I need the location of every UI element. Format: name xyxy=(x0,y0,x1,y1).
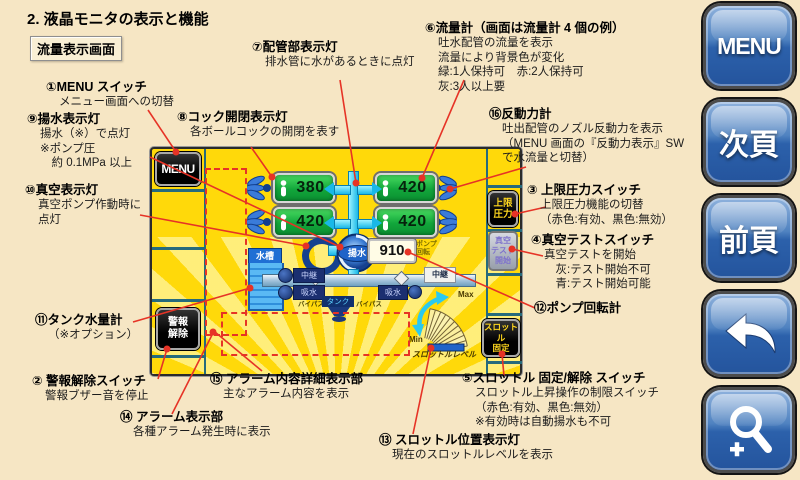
annotation-line: 主なアラーム内容を表示 xyxy=(223,387,363,402)
bypass-right-label: バイパス xyxy=(356,298,382,308)
annotation-line: スロットル上昇操作の制限スイッチ xyxy=(475,386,659,401)
annotation-vacuum-test: ④真空テストスイッチ 真空テストを開始 灰:テスト開始不可 青:テスト開始可能 xyxy=(531,233,654,292)
back-icon xyxy=(718,306,780,362)
annotation-line: （赤色:有効、黒色:無効） xyxy=(475,401,659,416)
annotation-title: ⑪タンク水量計 xyxy=(35,313,138,328)
help-page: 2. 液晶モニタの表示と機能 流量表示画面 MENU 警報 解除 上限 圧力 真… xyxy=(0,0,800,480)
annotation-title: ①MENU スイッチ xyxy=(46,80,174,95)
annotation-upper-limit: ③ 上限圧力スイッチ 上限圧力機能の切替 （赤色:有効、黒色:無効） xyxy=(527,183,673,227)
pipe-arm xyxy=(334,219,351,229)
annotation-line: （赤色:有効、黒色:無効） xyxy=(540,213,673,228)
coupling-icon xyxy=(278,285,293,300)
annotation-title: ⑩真空表示灯 xyxy=(25,183,141,198)
annotation-title: ⑨揚水表示灯 xyxy=(27,112,132,127)
arrow-left xyxy=(324,182,334,196)
annotation-line: 流量により背景色が変化 xyxy=(438,51,624,66)
sidebar-back-button[interactable] xyxy=(703,291,795,377)
arrow-left xyxy=(324,216,334,230)
annotation-line: 吐出配管のノズル反動力を表示 xyxy=(502,122,684,137)
annotation-line: 吐水配管の流量を表示 xyxy=(438,36,624,51)
annotation-title: ⑭ アラーム表示部 xyxy=(120,410,271,425)
sidebar-menu-label: MENU xyxy=(717,33,781,60)
throttle-min-label: Min xyxy=(409,335,423,344)
annotation-title: ⑦配管部表示灯 xyxy=(252,40,415,55)
arrow-right xyxy=(372,182,382,196)
annotation-title: ⑥流量計（画面は流量計 4 個の例） xyxy=(425,21,624,36)
annotation-throttle-lock: ⑤スロットル 固定/解除 スイッチ スロットル上昇操作の制限スイッチ （赤色:有… xyxy=(462,371,659,430)
annotation-title: ④真空テストスイッチ xyxy=(531,233,654,248)
person-icon xyxy=(279,180,288,197)
annotation-title: ③ 上限圧力スイッチ xyxy=(527,183,673,198)
annotation-line: で水流量と切替） xyxy=(502,151,684,166)
annotation-title: ② 警報解除スイッチ xyxy=(32,374,149,389)
annotation-line: 灰:3人以上要 xyxy=(438,80,624,95)
annotation-alarm-release: ② 警報解除スイッチ 警報ブザー音を停止 xyxy=(32,374,149,404)
arrow-right xyxy=(372,216,382,230)
sidebar-zoom-in-button[interactable] xyxy=(703,387,795,473)
pump-rpm-display: 910 xyxy=(368,239,416,263)
vacuum-test-switch[interactable]: 真空 テスト 開始 xyxy=(488,231,518,271)
panel-menu-button[interactable]: MENU xyxy=(155,152,201,186)
annotation-vacuum-lamp: ⑩真空表示灯 真空ポンプ作動時に 点灯 xyxy=(25,183,141,227)
annotation-line: 上限圧力機能の切替 xyxy=(540,198,673,213)
alarm-release-switch[interactable]: 警報 解除 xyxy=(156,308,200,350)
sidebar-next-page-button[interactable]: 次頁 xyxy=(703,99,795,185)
annotation-line: 警報ブザー音を停止 xyxy=(45,389,149,404)
coupling-icon xyxy=(278,268,293,283)
throttle-max-label: Max xyxy=(458,290,474,299)
zoom-in-icon xyxy=(720,401,778,459)
relay-right-label: 中継 xyxy=(424,267,456,283)
annotation-line: 現在のスロットルレベルを表示 xyxy=(392,448,553,463)
annotation-piping-lamp: ⑦配管部表示灯 排水管に水があるときに点灯 xyxy=(252,40,415,70)
annotation-title: ⑤スロットル 固定/解除 スイッチ xyxy=(462,371,659,386)
flow-value: 420 xyxy=(390,213,435,231)
annotation-line: 排水管に水があるときに点灯 xyxy=(265,55,415,70)
annotation-line: ※ポンプ圧 xyxy=(40,142,132,157)
annotation-title: ⑧コック開閉表示灯 xyxy=(177,110,339,125)
tank-connector-label: タンク xyxy=(322,296,354,307)
relay-left-label: 中継 xyxy=(293,268,325,283)
annotation-line: 緑:1人保持可 赤:2人保持可 xyxy=(438,65,624,80)
sidebar-next-label: 次頁 xyxy=(719,120,779,164)
annotation-line: 点灯 xyxy=(38,213,141,228)
annotation-title: ⑮ アラーム内容詳細表示部 xyxy=(210,372,363,387)
annotation-title: ⑯反動力計 xyxy=(489,107,684,122)
annotation-alarm-detail: ⑮ アラーム内容詳細表示部 主なアラーム内容を表示 xyxy=(210,372,363,402)
water-tank-label: 水槽 xyxy=(248,248,282,264)
annotation-flow-meter: ⑥流量計（画面は流量計 4 個の例） 吐水配管の流量を表示 流量により背景色が変… xyxy=(425,21,624,94)
sidebar-prev-page-button[interactable]: 前頁 xyxy=(703,195,795,281)
page-title: 2. 液晶モニタの表示と機能 xyxy=(27,8,209,29)
annotation-throttle-position: ⑬ スロットル位置表示灯 現在のスロットルレベルを表示 xyxy=(379,433,553,463)
screen-name-label: 流量表示画面 xyxy=(30,36,122,61)
annotation-menu-switch: ①MENU スイッチ メニュー画面への切替 xyxy=(46,80,174,110)
flow-value: 420 xyxy=(390,179,435,197)
person-icon xyxy=(381,180,390,197)
pump-rpm-label: ポンプ 回転 xyxy=(416,241,437,258)
annotation-line: メニュー画面への切替 xyxy=(59,95,174,110)
sidebar-menu-button[interactable]: MENU xyxy=(703,3,795,89)
annotation-line: （MENU 画面の『反動力表示』SW xyxy=(502,137,684,152)
nozzle-icon xyxy=(247,209,271,235)
annotation-lift-lamp: ⑨揚水表示灯 揚水（※）で点灯 ※ポンプ圧 約 0.1MPa 以上 xyxy=(27,112,132,171)
annotation-reaction-meter: ⑯反動力計 吐出配管のノズル反動力を表示 （MENU 画面の『反動力表示』SW … xyxy=(489,107,684,166)
flow-meter: 420 xyxy=(375,207,437,237)
person-icon xyxy=(279,214,288,231)
nozzle-icon xyxy=(247,175,271,201)
throttle-scale-label: スロットルレベル xyxy=(412,349,476,360)
annotation-line: 各ボールコックの開閉を表す xyxy=(190,125,339,140)
annotation-line: ※有効時は自動揚水も不可 xyxy=(475,415,659,430)
alarm-detail-dashed-outline xyxy=(221,312,410,356)
annotation-line: 灰:テスト開始不可 xyxy=(544,263,654,278)
annotation-alarm-display: ⑭ アラーム表示部 各種アラーム発生時に表示 xyxy=(120,410,271,440)
annotation-title: ⑫ポンプ回転計 xyxy=(534,301,621,316)
annotation-title: ⑬ スロットル位置表示灯 xyxy=(379,433,553,448)
sidebar-prev-label: 前頁 xyxy=(719,216,779,260)
annotation-rpm-meter: ⑫ポンプ回転計 xyxy=(534,301,621,316)
annotation-line: 各種アラーム発生時に表示 xyxy=(133,425,271,440)
alarm-display-dashed-outline xyxy=(205,168,247,336)
annotation-line: （※オプション） xyxy=(48,328,138,343)
annotation-line: 揚水（※）で点灯 xyxy=(40,127,132,142)
upper-limit-pressure-switch[interactable]: 上限 圧力 xyxy=(488,191,518,227)
annotation-line: 約 0.1MPa 以上 xyxy=(40,156,132,171)
annotation-line: 真空テストを開始 xyxy=(544,248,654,263)
bypass-left-label: バイパス xyxy=(298,298,324,308)
annotation-tank-gauge: ⑪タンク水量計 （※オプション） xyxy=(35,313,138,343)
annotation-cock-lamp: ⑧コック開閉表示灯 各ボールコックの開閉を表す xyxy=(177,110,339,140)
suction-right-label: 吸水 xyxy=(378,285,408,300)
annotation-line: 真空ポンプ作動時に xyxy=(38,198,141,213)
pipe-arm xyxy=(334,185,351,195)
annotation-line: 青:テスト開始可能 xyxy=(544,277,654,292)
flow-meter: 420 xyxy=(375,173,437,203)
person-icon xyxy=(381,214,390,231)
